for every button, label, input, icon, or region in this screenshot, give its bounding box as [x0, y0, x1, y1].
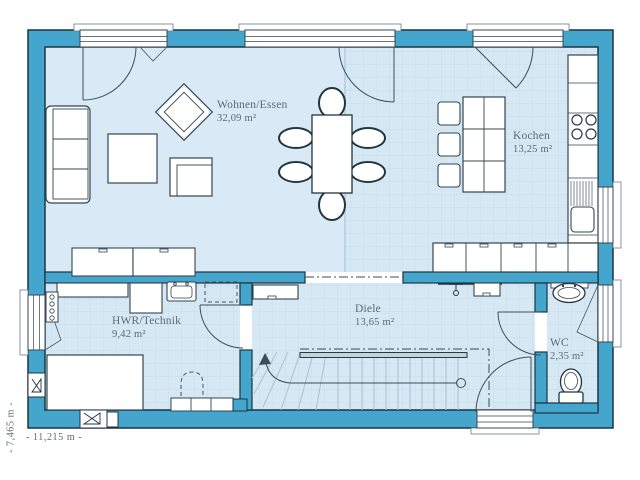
sofa	[46, 106, 90, 203]
kitchen-chairs	[438, 102, 460, 187]
tv-sideboard	[72, 248, 195, 276]
window-terrace-left	[80, 30, 167, 47]
window-terrace-center	[245, 30, 395, 47]
dimension-width-label: - 11,215 m -	[26, 432, 82, 443]
hwr-low-cabinet	[171, 398, 247, 411]
coffee-table	[108, 134, 157, 183]
stair-handrail	[300, 353, 467, 358]
floor-plan-drawing	[0, 0, 640, 480]
floor-plan: Wohnen/Essen 32,09 m² Kochen 13,25 m² HW…	[0, 0, 640, 480]
window-wc-right	[598, 285, 613, 342]
window-kitchen-right	[598, 187, 613, 243]
hall-floor	[252, 283, 535, 410]
entrance-door-opening	[477, 410, 533, 428]
kitchen-base-cabinets	[433, 243, 598, 272]
toilet	[559, 369, 583, 403]
heating-unit	[46, 292, 58, 322]
hwr-workbench	[47, 355, 143, 410]
kitchen-table	[438, 97, 505, 192]
dimension-height-label: - 7,465 m -	[6, 383, 19, 473]
dining-table	[312, 115, 352, 193]
hwr-counter	[57, 283, 128, 297]
wall-symbol-bottom	[80, 410, 118, 428]
wall-symbol-left	[28, 373, 45, 397]
hwr-cabinet	[130, 283, 162, 313]
hwr-sink	[167, 282, 196, 301]
window-hwr-left	[28, 295, 45, 350]
hall-wardrobe	[474, 283, 500, 296]
window-kitchen-top	[473, 30, 563, 47]
armchair	[170, 158, 212, 196]
hall-sideboard	[253, 285, 298, 299]
kitchen-counter-right	[568, 55, 598, 243]
